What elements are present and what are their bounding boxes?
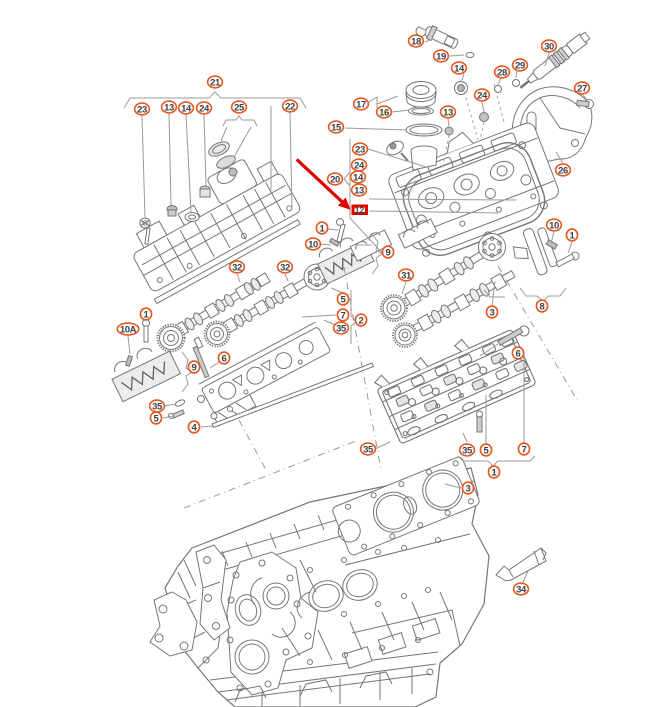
svg-text:19: 19: [436, 51, 446, 62]
svg-text:24: 24: [477, 90, 488, 101]
svg-text:7: 7: [341, 310, 346, 321]
svg-text:35: 35: [363, 444, 374, 455]
svg-text:10A: 10A: [120, 324, 137, 335]
svg-text:2: 2: [359, 315, 364, 326]
svg-text:18: 18: [411, 36, 421, 47]
svg-text:8: 8: [540, 301, 545, 312]
svg-text:21: 21: [210, 77, 221, 88]
svg-text:14: 14: [181, 103, 192, 114]
svg-text:3: 3: [466, 483, 471, 494]
svg-text:10: 10: [308, 239, 318, 250]
svg-text:35: 35: [462, 445, 473, 456]
svg-text:23: 23: [137, 104, 147, 115]
svg-text:14: 14: [353, 172, 364, 183]
svg-text:13: 13: [443, 107, 453, 118]
svg-text:17: 17: [356, 99, 366, 110]
svg-text:9: 9: [386, 247, 391, 258]
svg-text:7: 7: [522, 444, 527, 455]
svg-text:35: 35: [336, 323, 347, 334]
svg-text:15: 15: [331, 122, 342, 133]
svg-text:32: 32: [232, 262, 242, 273]
svg-text:23: 23: [355, 144, 365, 155]
svg-text:27: 27: [577, 83, 587, 94]
svg-text:22: 22: [285, 101, 295, 112]
svg-text:20: 20: [330, 174, 340, 185]
svg-text:25: 25: [234, 102, 245, 113]
svg-text:28: 28: [497, 67, 507, 78]
svg-text:24: 24: [199, 103, 210, 114]
svg-text:6: 6: [516, 348, 521, 359]
svg-text:13: 13: [164, 102, 174, 113]
svg-text:35: 35: [152, 401, 163, 412]
svg-text:12: 12: [355, 205, 365, 215]
svg-text:26: 26: [558, 165, 568, 176]
svg-text:3: 3: [490, 307, 495, 318]
svg-text:10: 10: [549, 220, 559, 231]
svg-text:32: 32: [280, 262, 290, 273]
svg-text:30: 30: [544, 41, 554, 52]
svg-text:31: 31: [401, 270, 412, 281]
svg-text:34: 34: [516, 584, 527, 595]
svg-text:6: 6: [222, 353, 227, 364]
svg-text:9: 9: [192, 362, 197, 373]
svg-text:16: 16: [379, 107, 389, 118]
svg-text:29: 29: [515, 60, 525, 71]
svg-text:24: 24: [354, 160, 365, 171]
svg-text:14: 14: [454, 63, 465, 74]
svg-text:13: 13: [354, 185, 364, 196]
